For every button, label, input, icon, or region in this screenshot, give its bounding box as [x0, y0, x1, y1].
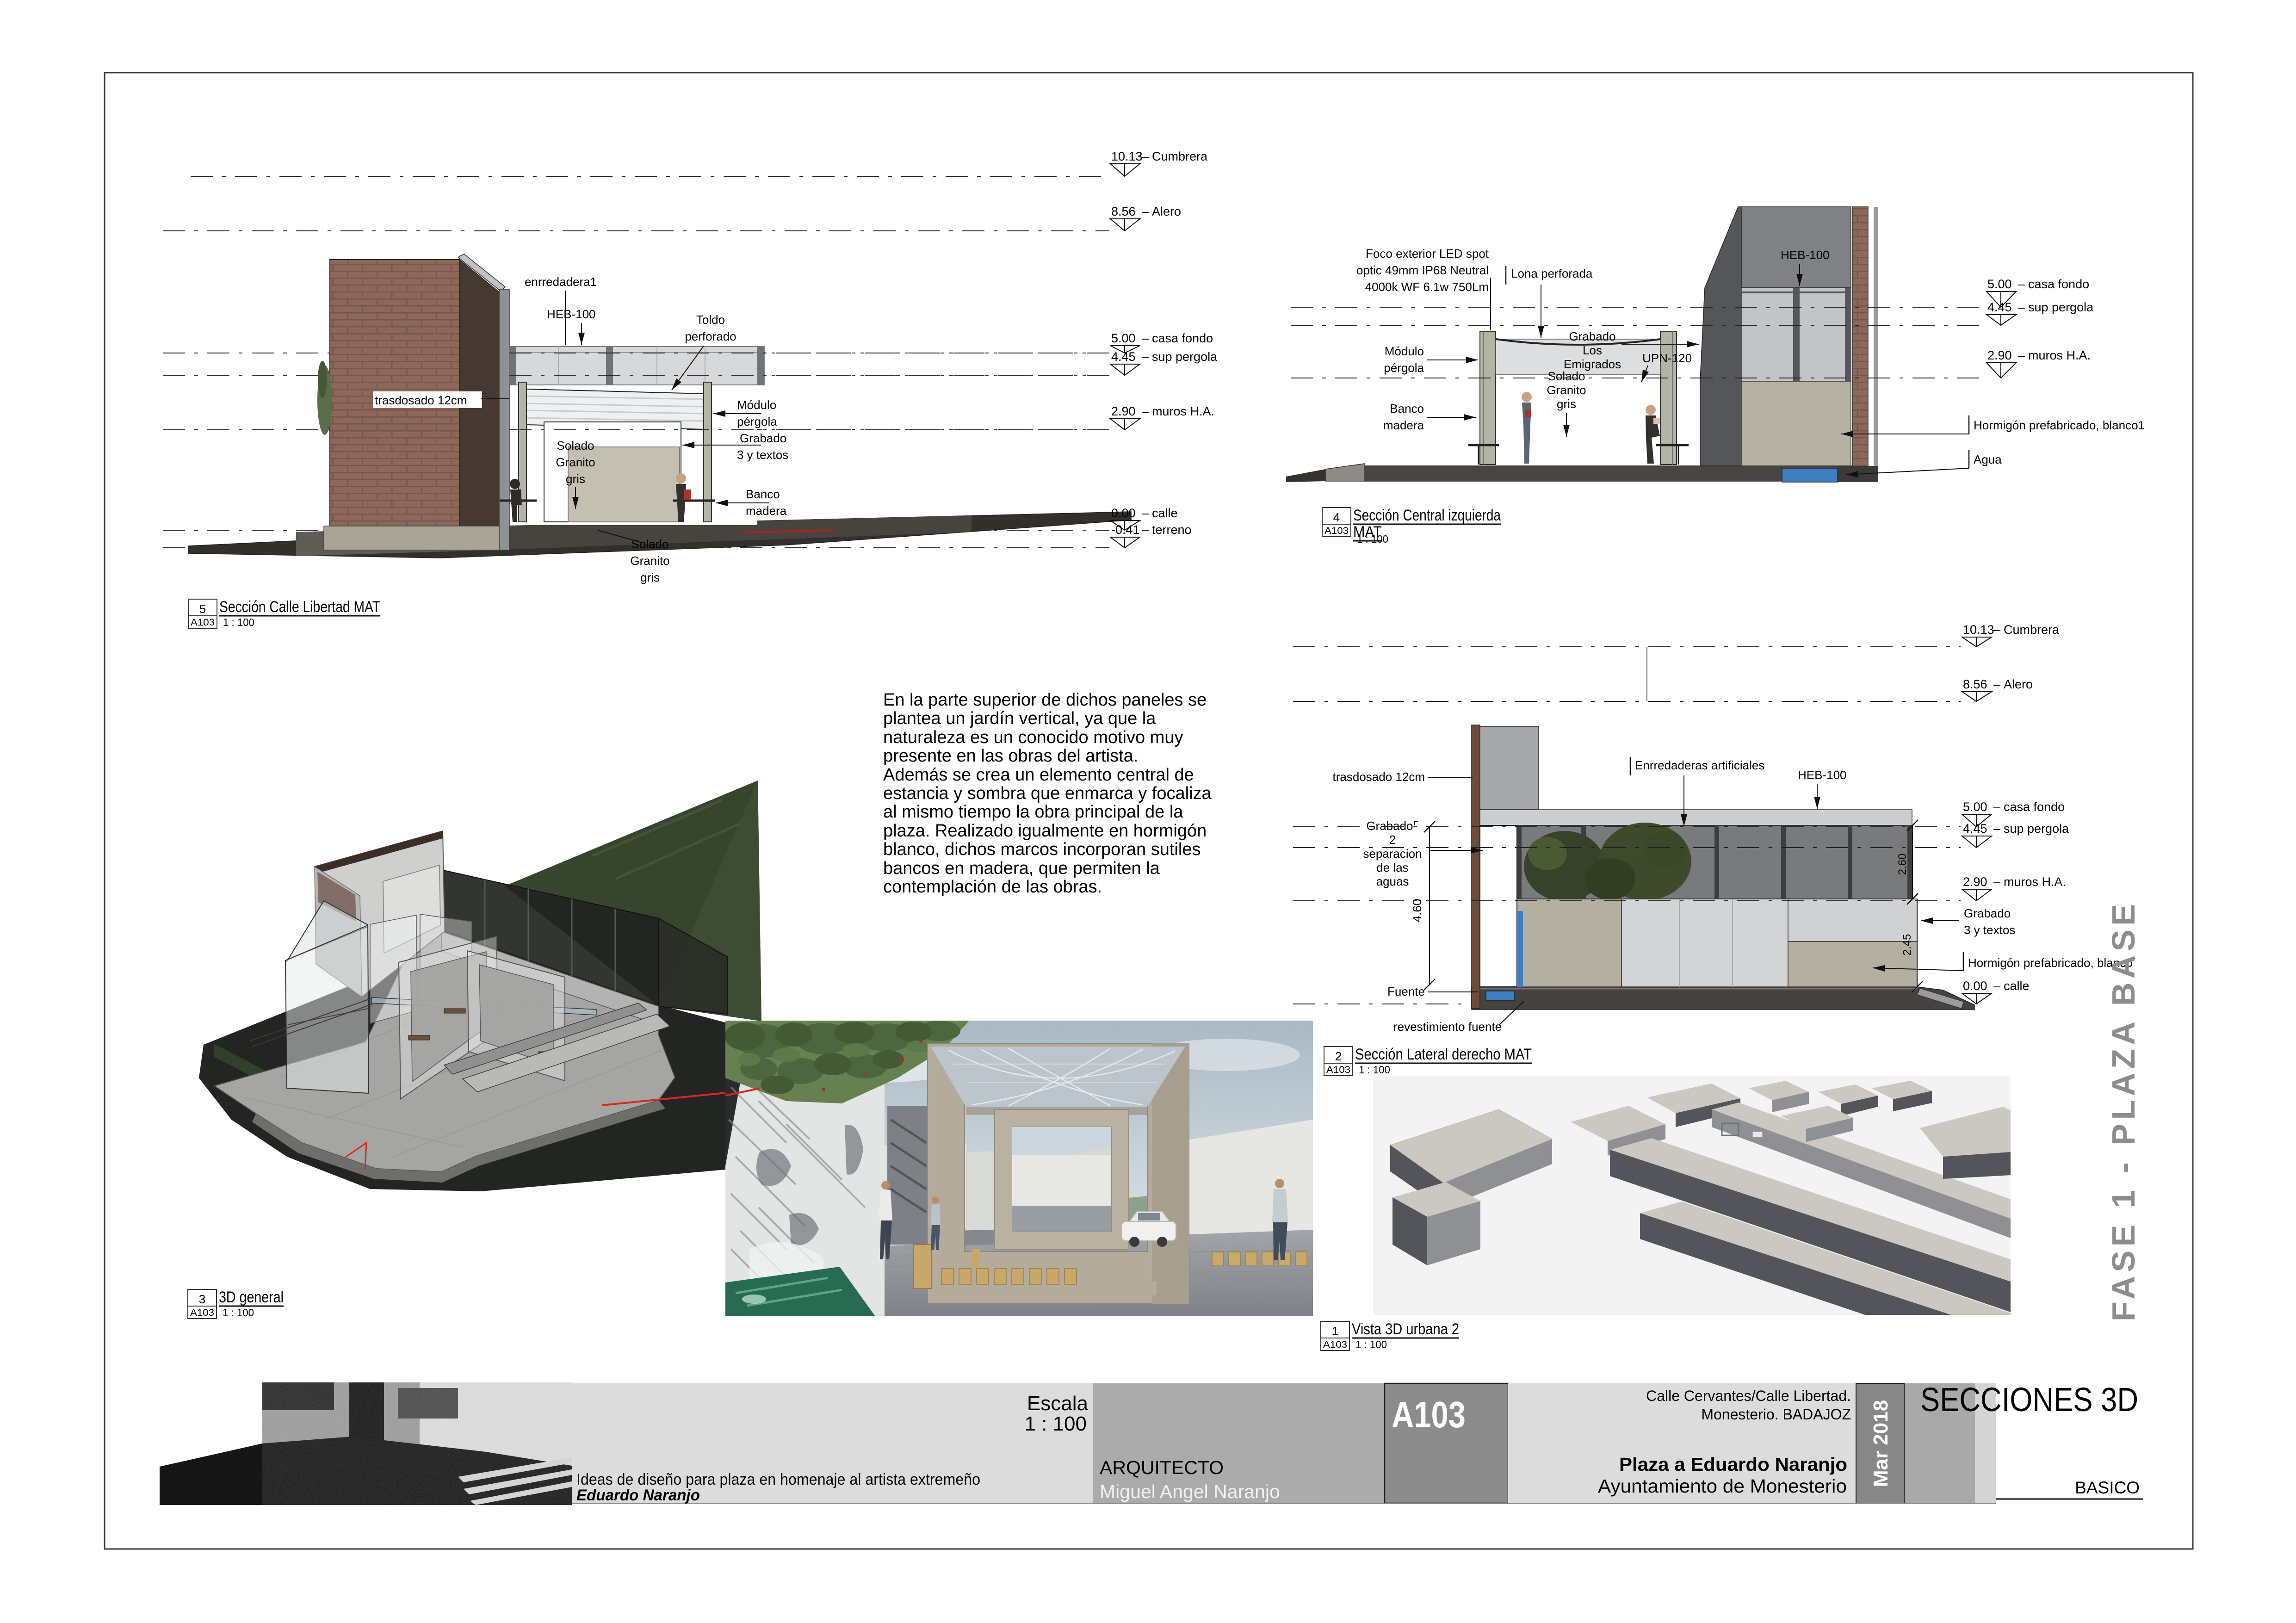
svg-text:calle: calle [2004, 979, 2030, 993]
svg-text:Enrredaderas artificiales: Enrredaderas artificiales [1635, 758, 1764, 772]
svg-text:Ideas de diseño para plaza en: Ideas de diseño para plaza en homenaje a… [576, 1471, 980, 1488]
svg-text:4.60: 4.60 [1410, 899, 1424, 923]
svg-text:4.45: 4.45 [1111, 350, 1136, 364]
svg-text:-0.41: -0.41 [1111, 523, 1140, 537]
svg-text:Sección Lateral derecho MAT: Sección Lateral derecho MAT [1355, 1046, 1532, 1063]
svg-text:enrredadera1: enrredadera1 [525, 275, 597, 289]
svg-text:Cumbrera: Cumbrera [1152, 149, 1208, 163]
svg-text:muros H.A.: muros H.A. [2028, 348, 2091, 362]
svg-text:Grabado: Grabado [740, 431, 786, 445]
svg-text:Miguel Angel Naranjo: Miguel Angel Naranjo [1100, 1481, 1280, 1502]
svg-text:Alero: Alero [2004, 677, 2033, 691]
svg-text:En la parte superior de dichos: En la parte superior de dichos paneles s… [883, 690, 1207, 710]
svg-text:5.00: 5.00 [1111, 331, 1136, 345]
svg-text:5.00: 5.00 [1987, 277, 2012, 291]
svg-text:1 : 100: 1 : 100 [1357, 533, 1388, 545]
svg-text:Alero: Alero [1152, 204, 1181, 218]
svg-text:Sección Central izquierda: Sección Central izquierda [1353, 507, 1501, 524]
svg-text:A103: A103 [1326, 1065, 1350, 1075]
svg-text:Fuente: Fuente [1387, 985, 1425, 998]
svg-text:–: – [2018, 348, 2025, 362]
svg-text:2.90: 2.90 [1963, 875, 1987, 889]
svg-text:A103: A103 [1324, 526, 1349, 536]
svg-text:Banco: Banco [1390, 402, 1424, 415]
svg-text:naturaleza es un conocido moti: naturaleza es un conocido motivo muy [883, 728, 1183, 747]
svg-text:optic 49mm IP68 Neutral: optic 49mm IP68 Neutral [1356, 263, 1489, 277]
svg-text:5: 5 [199, 602, 206, 616]
svg-text:3: 3 [199, 1292, 205, 1306]
svg-text:perforado: perforado [685, 329, 736, 343]
svg-text:Eduardo Naranjo: Eduardo Naranjo [576, 1487, 700, 1504]
svg-text:ARQUITECTO: ARQUITECTO [1100, 1457, 1224, 1478]
svg-text:1 : 100: 1 : 100 [223, 1307, 254, 1319]
svg-text:–: – [1993, 623, 2000, 637]
svg-text:revestimiento fuente: revestimiento fuente [1393, 1020, 1502, 1034]
svg-text:Módulo: Módulo [737, 398, 776, 412]
svg-text:1 : 100: 1 : 100 [1359, 1064, 1390, 1076]
svg-text:3 y textos: 3 y textos [737, 448, 788, 462]
svg-text:1 : 100: 1 : 100 [1355, 1338, 1387, 1350]
svg-text:3D general: 3D general [219, 1288, 284, 1306]
svg-text:trasdosado 12cm: trasdosado 12cm [375, 393, 467, 407]
svg-text:Solado: Solado [557, 439, 594, 452]
svg-text:pérgola: pérgola [737, 415, 777, 428]
svg-text:0.00: 0.00 [1963, 979, 1987, 993]
svg-text:Grabado: Grabado [1569, 329, 1615, 343]
svg-text:10.13: 10.13 [1111, 149, 1143, 163]
svg-text:Los: Los [1583, 343, 1602, 357]
svg-text:8.56: 8.56 [1963, 677, 1987, 691]
svg-text:Cumbrera: Cumbrera [2004, 623, 2060, 637]
svg-text:Lona perforada: Lona perforada [1511, 266, 1593, 280]
svg-text:Hormigón prefabricado, blanco1: Hormigón prefabricado, blanco1 [1974, 418, 2145, 432]
svg-text:madera: madera [746, 504, 787, 518]
svg-text:al mismo tiempo la obra princi: al mismo tiempo la obra principal de la [883, 802, 1183, 822]
svg-text:pérgola: pérgola [1384, 361, 1424, 375]
svg-text:–: – [1142, 506, 1149, 520]
svg-text:FASE 1 - PLAZA BASE: FASE 1 - PLAZA BASE [2105, 904, 2141, 1321]
svg-text:contemplación de las obras.: contemplación de las obras. [883, 877, 1102, 897]
svg-text:A103: A103 [190, 1307, 214, 1318]
svg-text:casa fondo: casa fondo [2004, 800, 2065, 814]
svg-text:plaza. Realizado igualmente en: plaza. Realizado igualmente en hormigón [883, 821, 1207, 841]
svg-text:Ayuntamiento de Monesterio: Ayuntamiento de Monesterio [1598, 1475, 1847, 1497]
svg-text:1: 1 [1332, 1324, 1338, 1338]
svg-text:bancos en madera, que permiten: bancos en madera, que permiten la [883, 859, 1160, 878]
svg-text:estancia y sombra que enmarca: estancia y sombra que enmarca y focaliza [883, 784, 1212, 803]
svg-text:Agua: Agua [1974, 452, 2002, 466]
svg-text:–: – [1142, 350, 1149, 364]
svg-text:muros H.A.: muros H.A. [1152, 404, 1214, 418]
svg-text:de las: de las [1376, 861, 1408, 874]
svg-text:Mar 2018: Mar 2018 [1869, 1400, 1892, 1487]
svg-text:BASICO: BASICO [2075, 1478, 2140, 1497]
svg-text:Toldo: Toldo [696, 313, 725, 327]
svg-text:4000k WF 6.1w 750Lm: 4000k WF 6.1w 750Lm [1365, 280, 1489, 294]
svg-text:blanco, dichos marcos incorpor: blanco, dichos marcos incorporan sutiles [883, 840, 1201, 859]
svg-text:Sección Calle Libertad MAT: Sección Calle Libertad MAT [219, 598, 380, 616]
svg-text:Grabado⌜: Grabado⌜ [1366, 819, 1418, 833]
svg-text:2.60: 2.60 [1896, 854, 1909, 875]
svg-text:A103: A103 [1392, 1394, 1466, 1435]
svg-text:–: – [2018, 300, 2025, 314]
svg-text:–: – [1993, 677, 2000, 691]
svg-text:muros H.A.: muros H.A. [2004, 875, 2066, 889]
svg-text:A103: A103 [1323, 1339, 1347, 1350]
svg-text:2: 2 [1335, 1049, 1342, 1063]
svg-text:HEB-100: HEB-100 [1798, 768, 1847, 782]
svg-text:calle: calle [1152, 506, 1178, 520]
svg-text:2.45: 2.45 [1901, 934, 1913, 956]
svg-text:Calle Cervantes/Calle Libertad: Calle Cervantes/Calle Libertad. [1646, 1388, 1851, 1404]
svg-text:HEB-100: HEB-100 [1781, 248, 1830, 262]
svg-text:separacion: separacion [1363, 847, 1422, 861]
svg-text:–: – [1142, 149, 1149, 163]
svg-text:2: 2 [1389, 833, 1396, 847]
svg-text:1 : 100: 1 : 100 [1024, 1412, 1087, 1435]
svg-text:aguas: aguas [1376, 874, 1409, 888]
svg-text:Grabado: Grabado [1964, 906, 2011, 920]
svg-text:Monesterio. BADAJOZ: Monesterio. BADAJOZ [1701, 1406, 1851, 1423]
svg-text:trasdosado 12cm: trasdosado 12cm [1333, 770, 1425, 784]
svg-text:HEB-100: HEB-100 [547, 307, 596, 321]
svg-text:2.90: 2.90 [1987, 348, 2012, 362]
svg-text:terreno: terreno [1152, 523, 1192, 537]
svg-text:casa fondo: casa fondo [1152, 331, 1213, 345]
svg-text:sup pergola: sup pergola [2028, 300, 2094, 314]
svg-text:5.00: 5.00 [1963, 800, 1987, 814]
svg-text:3 y textos: 3 y textos [1964, 923, 2015, 937]
svg-text:sup pergola: sup pergola [2004, 822, 2069, 836]
svg-text:–: – [1142, 523, 1149, 537]
svg-text:–: – [1993, 979, 2000, 993]
svg-text:A103: A103 [191, 617, 215, 628]
svg-text:UPN-120: UPN-120 [1642, 351, 1692, 365]
svg-text:4.45: 4.45 [1987, 300, 2012, 314]
svg-text:Banco: Banco [746, 487, 780, 501]
svg-text:Plaza a Eduardo Naranjo: Plaza a Eduardo Naranjo [1619, 1454, 1847, 1475]
svg-text:–: – [1142, 404, 1149, 418]
svg-text:4.45: 4.45 [1963, 822, 1987, 836]
svg-text:madera: madera [1383, 418, 1424, 432]
svg-text:Granito: Granito [556, 455, 595, 469]
svg-text:–: – [1993, 875, 2000, 889]
svg-text:Solado: Solado [1548, 369, 1585, 383]
svg-text:Foco exterior LED spot: Foco exterior LED spot [1366, 247, 1489, 260]
svg-text:Además se crea un elemento cen: Además se crea un elemento central de [883, 765, 1194, 785]
svg-text:–: – [1142, 204, 1149, 218]
svg-text:–: – [1993, 822, 2000, 836]
svg-text:casa fondo: casa fondo [2028, 277, 2089, 291]
svg-text:Solado: Solado [631, 537, 669, 551]
svg-text:gris: gris [566, 472, 585, 486]
svg-text:1 : 100: 1 : 100 [223, 616, 254, 628]
svg-text:presente en las obras del arti: presente en las obras del artista. [883, 746, 1138, 766]
svg-text:sup pergola: sup pergola [1152, 350, 1218, 364]
svg-text:4: 4 [1333, 510, 1340, 524]
svg-text:Vista 3D urbana 2: Vista 3D urbana 2 [1352, 1320, 1459, 1338]
svg-text:–: – [1142, 331, 1149, 345]
svg-text:Granito: Granito [1547, 383, 1586, 397]
svg-text:plantea un jardín vertical, ya: plantea un jardín vertical, ya que la [883, 709, 1156, 728]
svg-text:Módulo: Módulo [1385, 344, 1424, 358]
svg-text:2.90: 2.90 [1111, 404, 1136, 418]
svg-text:Granito: Granito [630, 554, 669, 568]
svg-text:gris: gris [640, 570, 660, 584]
svg-text:gris: gris [1557, 397, 1576, 411]
svg-text:10.13: 10.13 [1963, 623, 1994, 637]
svg-text:8.56: 8.56 [1111, 204, 1136, 218]
svg-text:0.00: 0.00 [1111, 506, 1136, 520]
svg-text:–: – [2018, 277, 2025, 291]
svg-text:SECCIONES 3D: SECCIONES 3D [1920, 1381, 2138, 1419]
svg-text:–: – [1993, 800, 2000, 814]
svg-text:Escala: Escala [1027, 1392, 1089, 1415]
